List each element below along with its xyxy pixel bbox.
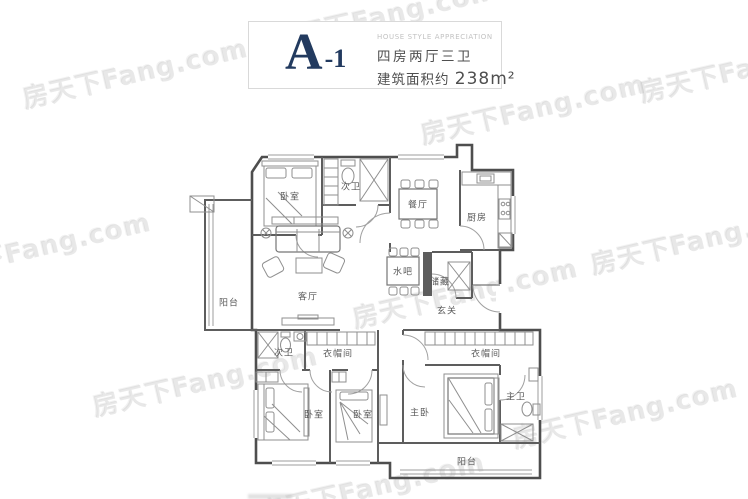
master-bedroom-furniture xyxy=(444,374,499,438)
dining-table xyxy=(399,180,438,228)
floor-plan xyxy=(0,0,748,499)
cloakroom-left-hangers xyxy=(256,332,375,382)
master-bath-fixtures xyxy=(501,368,540,441)
storage-cabinet xyxy=(448,262,470,290)
bedroom3-furniture xyxy=(336,390,372,442)
bath-top-fixtures xyxy=(341,159,388,201)
left-balcony xyxy=(190,196,252,330)
water-bar-table xyxy=(387,248,419,295)
bedroom1-furniture xyxy=(262,159,338,226)
kitchen-fixtures xyxy=(462,172,512,248)
bath-lower-fixtures xyxy=(258,332,306,358)
bottom-cutoff-text xyxy=(248,494,292,499)
living-room-furniture xyxy=(261,217,353,325)
floorplan-page: 房天下Fang.com 房天下Fang.com 房天下Fang.com 房天下F… xyxy=(0,0,748,499)
